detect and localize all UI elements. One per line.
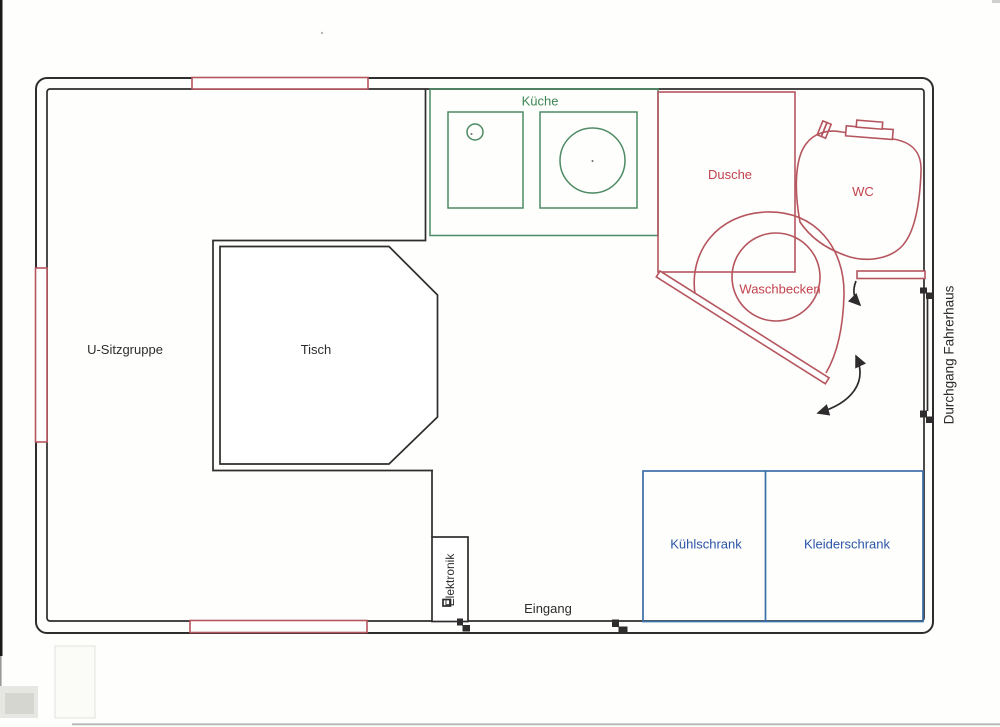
- electronics-label: Elektronik: [443, 553, 457, 607]
- floor-plan-drawing: U-Sitzgruppe Tisch Elektronik Küche Dusc…: [0, 0, 1000, 727]
- scan-edge-left: [0, 0, 3, 656]
- cab-passage-label: Durchgang Fahrerhaus: [942, 285, 957, 424]
- seating-label: U-Sitzgruppe: [87, 342, 163, 357]
- seating-area: U-Sitzgruppe Tisch: [87, 89, 437, 537]
- kitchen-faucet: [467, 124, 483, 140]
- washbasin-label: Waschbecken: [739, 282, 820, 297]
- shower-label: Dusche: [708, 167, 752, 182]
- wardrobe-label: Kleiderschrank: [804, 537, 890, 552]
- toilet-flush-button: [817, 121, 831, 138]
- toilet-tank-cap: [856, 120, 882, 129]
- toilet-tank: [846, 119, 894, 139]
- door-swing-arrow-large: [818, 356, 860, 413]
- scan-edge-bottom: [72, 723, 1000, 725]
- scan-artifacts: [0, 0, 1000, 725]
- kitchen-stove-unit: [540, 112, 637, 208]
- scan-smudge-2: [5, 693, 34, 714]
- kitchen-faucet-dot: [471, 133, 473, 135]
- kitchen-counter-outline: [430, 89, 658, 236]
- entrance-label: Eingang: [524, 601, 572, 616]
- kitchen-area: Küche: [430, 89, 658, 236]
- floor-plan-scan: U-Sitzgruppe Tisch Elektronik Küche Dusc…: [0, 0, 1000, 727]
- bathroom-area: Dusche WC Waschbecken: [656, 92, 925, 384]
- window-left: [36, 268, 48, 442]
- scan-speck-top-right: [992, 0, 1000, 3]
- fridge-label: Kühlschrank: [670, 537, 742, 552]
- electronics-cabinet: Elektronik: [432, 537, 468, 622]
- washbasin-bowl: [732, 233, 820, 321]
- scan-smudge-box: [55, 646, 95, 718]
- window-top: [192, 78, 368, 90]
- window-bottom: [190, 621, 367, 633]
- cab-door-hinge-bottom: [920, 411, 933, 424]
- kitchen-stove-dot: [592, 160, 594, 162]
- cab-door-hinge-top: [920, 288, 933, 300]
- shower-outline: [658, 92, 795, 272]
- scan-dot: [321, 32, 323, 34]
- table-label: Tisch: [301, 342, 332, 357]
- cab-passage-door: Durchgang Fahrerhaus: [818, 281, 957, 424]
- bathroom-partition-wall: [857, 271, 925, 279]
- kitchen-sink-unit: [448, 112, 523, 208]
- door-swing-arrow-small: [854, 281, 860, 305]
- kitchen-label: Küche: [522, 94, 559, 109]
- cabinet-area: Kühlschrank Kleiderschrank: [643, 471, 923, 622]
- entrance-door: Eingang: [457, 601, 628, 634]
- toilet-label: WC: [852, 184, 874, 199]
